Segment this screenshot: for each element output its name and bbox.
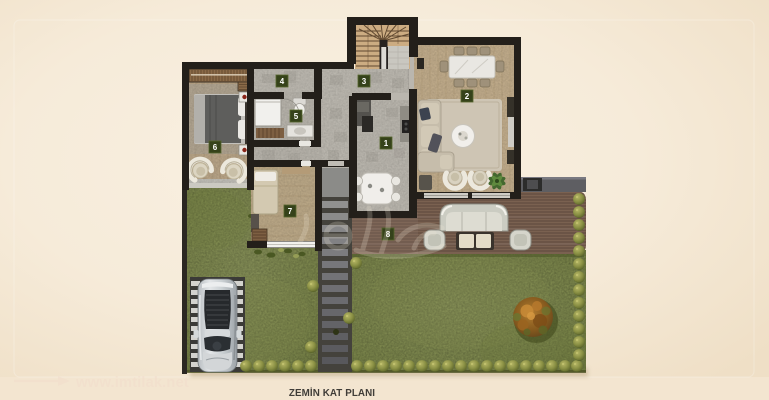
- svg-text:4: 4: [280, 77, 285, 86]
- svg-text:1: 1: [384, 139, 389, 148]
- svg-text:3: 3: [362, 77, 367, 86]
- svg-text:5: 5: [294, 112, 299, 121]
- svg-text:www.imtilak.net: www.imtilak.net: [75, 374, 189, 391]
- svg-text:ZEMİN KAT PLANI: ZEMİN KAT PLANI: [289, 388, 375, 399]
- svg-text:2: 2: [465, 92, 470, 101]
- svg-text:7: 7: [288, 207, 293, 216]
- svg-text:6: 6: [213, 143, 218, 152]
